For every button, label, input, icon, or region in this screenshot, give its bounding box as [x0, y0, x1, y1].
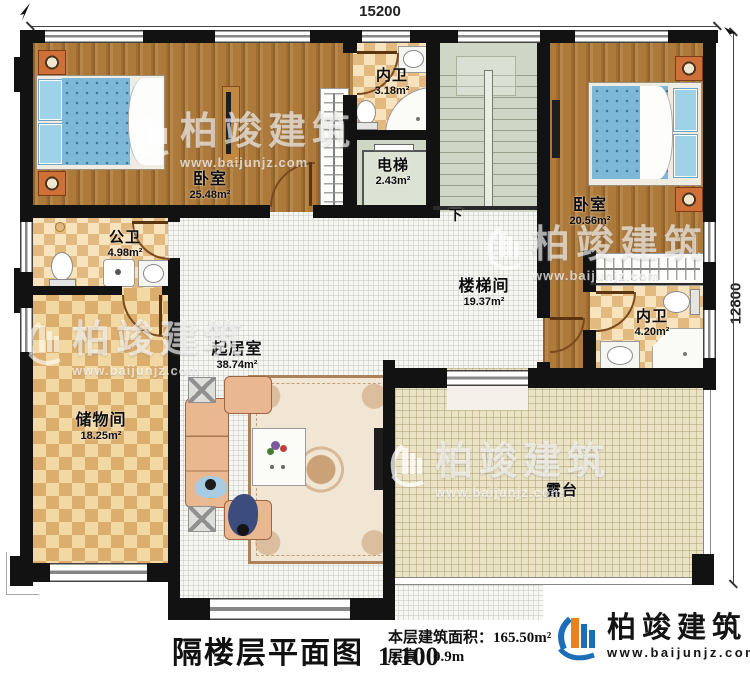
window [703, 310, 716, 358]
info-block: 本层建筑面积：165.50m² 层高：0.9m [388, 629, 551, 667]
window [20, 222, 33, 272]
room-area: 38.74m² [187, 359, 287, 371]
room-name: 起居室 [187, 341, 287, 359]
person-head [237, 524, 249, 536]
room-area: 20.56m² [540, 215, 640, 227]
dimension-right: 12800 [728, 274, 745, 334]
room-label-storage: 储物间 18.25m² [51, 412, 151, 442]
window [575, 30, 668, 43]
brand-name: 柏竣建筑 [607, 614, 750, 643]
room-name: 露台 [512, 483, 612, 500]
building-area-line: 本层建筑面积：165.50m² [388, 629, 551, 648]
room-label-bath-1: 内卫 3.18m² [352, 68, 432, 97]
wall [343, 130, 433, 140]
tv-icon [226, 92, 231, 154]
wall [583, 330, 596, 370]
table-dot [270, 465, 274, 469]
door-leaf [159, 295, 162, 335]
pier [10, 556, 33, 586]
brand-text: 柏竣建筑 www.baijunjz.com [607, 614, 750, 660]
wall [20, 286, 122, 295]
sink-icon [403, 50, 424, 68]
toilet-icon [51, 252, 73, 281]
wall [395, 368, 447, 388]
floor-terrace [395, 368, 708, 582]
pier [692, 554, 714, 585]
door-leaf [550, 317, 583, 320]
brand-logo: 柏竣建筑 www.baijunjz.com [552, 611, 750, 663]
room-name: 公卫 [75, 230, 175, 247]
window [458, 30, 540, 43]
nightstand-icon [38, 50, 66, 75]
wall [537, 368, 716, 388]
wall [343, 95, 357, 207]
wall [162, 286, 180, 295]
cursor-icon [14, 1, 34, 23]
sliding-door [447, 370, 528, 386]
door-leaf [596, 291, 634, 294]
stairs-down-label: 下 [444, 208, 468, 224]
terrace-threshold [447, 386, 528, 410]
tv-panel [222, 86, 240, 164]
closet-icon [590, 253, 705, 286]
tv-icon [552, 100, 560, 158]
floor-plan-canvas: 卧室 25.48m² 内卫 3.18m² 电梯 2.43m² 卧室 20.56m… [0, 0, 750, 675]
terrace-rail-bottom [395, 577, 709, 585]
pillow [674, 89, 697, 131]
wall [583, 250, 596, 292]
wall [528, 368, 550, 388]
room-area: 2.43m² [350, 175, 436, 187]
room-area: 3.18m² [352, 85, 432, 97]
room-label-bath-2: 内卫 4.20m² [602, 309, 702, 338]
flower [267, 448, 274, 455]
room-name: 电梯 [350, 158, 436, 175]
pier [14, 268, 33, 313]
pillow [674, 135, 697, 177]
room-name: 卧室 [160, 171, 260, 189]
door-leaf [357, 51, 397, 54]
room-label-bedroom-2: 卧室 20.56m² [540, 197, 640, 227]
wall [313, 205, 440, 218]
wall [168, 258, 180, 600]
cursor-icon [722, 25, 740, 41]
wall [168, 598, 210, 620]
room-label-bedroom-1: 卧室 25.48m² [160, 171, 260, 201]
room-name: 内卫 [602, 309, 702, 326]
window [20, 308, 33, 352]
room-label-living: 起居室 38.74m² [187, 341, 287, 371]
pillow [39, 124, 62, 164]
toilet-tank [355, 122, 378, 130]
window [210, 598, 350, 620]
room-label-stair-hall: 楼梯间 19.37m² [434, 278, 534, 308]
pillow [39, 80, 62, 120]
room-area: 25.48m² [160, 189, 260, 201]
flower [280, 445, 287, 452]
shower-drain [416, 117, 420, 121]
bed-blanket-fold [640, 86, 673, 179]
window [50, 563, 147, 582]
room-area: 19.37m² [434, 296, 534, 308]
wall [537, 43, 550, 318]
wall [350, 598, 395, 620]
room-label-public-bath: 公卫 4.98m² [75, 230, 175, 259]
pier [14, 57, 33, 92]
shower-drain [683, 352, 687, 356]
washer-door [115, 269, 121, 275]
room-name: 储物间 [51, 412, 151, 430]
room-name: 楼梯间 [434, 278, 534, 296]
room-label-terrace: 露台 [512, 483, 612, 500]
sink-icon [607, 346, 633, 365]
nightstand-icon [675, 187, 703, 212]
room-area: 4.98m² [75, 247, 175, 259]
plan-title: 隔楼层平面图 [172, 628, 364, 672]
room-label-elevator: 电梯 2.43m² [350, 158, 436, 187]
wall [147, 563, 180, 582]
side-table-icon [188, 506, 216, 532]
dimension-line-right [733, 32, 734, 584]
room-name: 内卫 [352, 68, 432, 85]
elevator-door [374, 144, 414, 151]
ceiling-light-icon [55, 222, 65, 232]
nightstand-icon [675, 56, 703, 81]
floor-height-line: 层高：0.9m [388, 648, 551, 667]
wall [343, 43, 357, 53]
dimension-line-top [30, 26, 718, 27]
bed-quilt [62, 78, 130, 165]
window [703, 222, 716, 262]
stairs-rail [484, 70, 493, 209]
door-leaf [309, 162, 312, 206]
armchair-icon [224, 376, 272, 414]
nightstand-icon [38, 171, 66, 196]
closet-hangers [595, 258, 700, 280]
closet-divider [590, 283, 703, 285]
terrace-rail-right [703, 388, 711, 579]
coffee-table-icon [252, 428, 306, 486]
door-leaf [132, 221, 168, 224]
closet-hangers [324, 93, 344, 205]
window [45, 30, 143, 43]
wall [20, 205, 270, 218]
window [362, 30, 410, 43]
person-head [205, 479, 216, 490]
dimension-top: 15200 [350, 3, 410, 20]
side-table-icon [188, 377, 216, 403]
room-area: 18.25m² [51, 430, 151, 442]
brand-url: www.baijunjz.com [607, 645, 750, 660]
table-dot [281, 465, 285, 469]
room-name: 卧室 [540, 197, 640, 215]
room-area: 4.20m² [602, 326, 702, 338]
bed-blanket-fold [128, 78, 163, 165]
sink-icon [143, 264, 164, 283]
wall [168, 205, 180, 222]
brand-logo-icon [552, 611, 600, 663]
wall [383, 360, 395, 602]
window [215, 30, 310, 43]
